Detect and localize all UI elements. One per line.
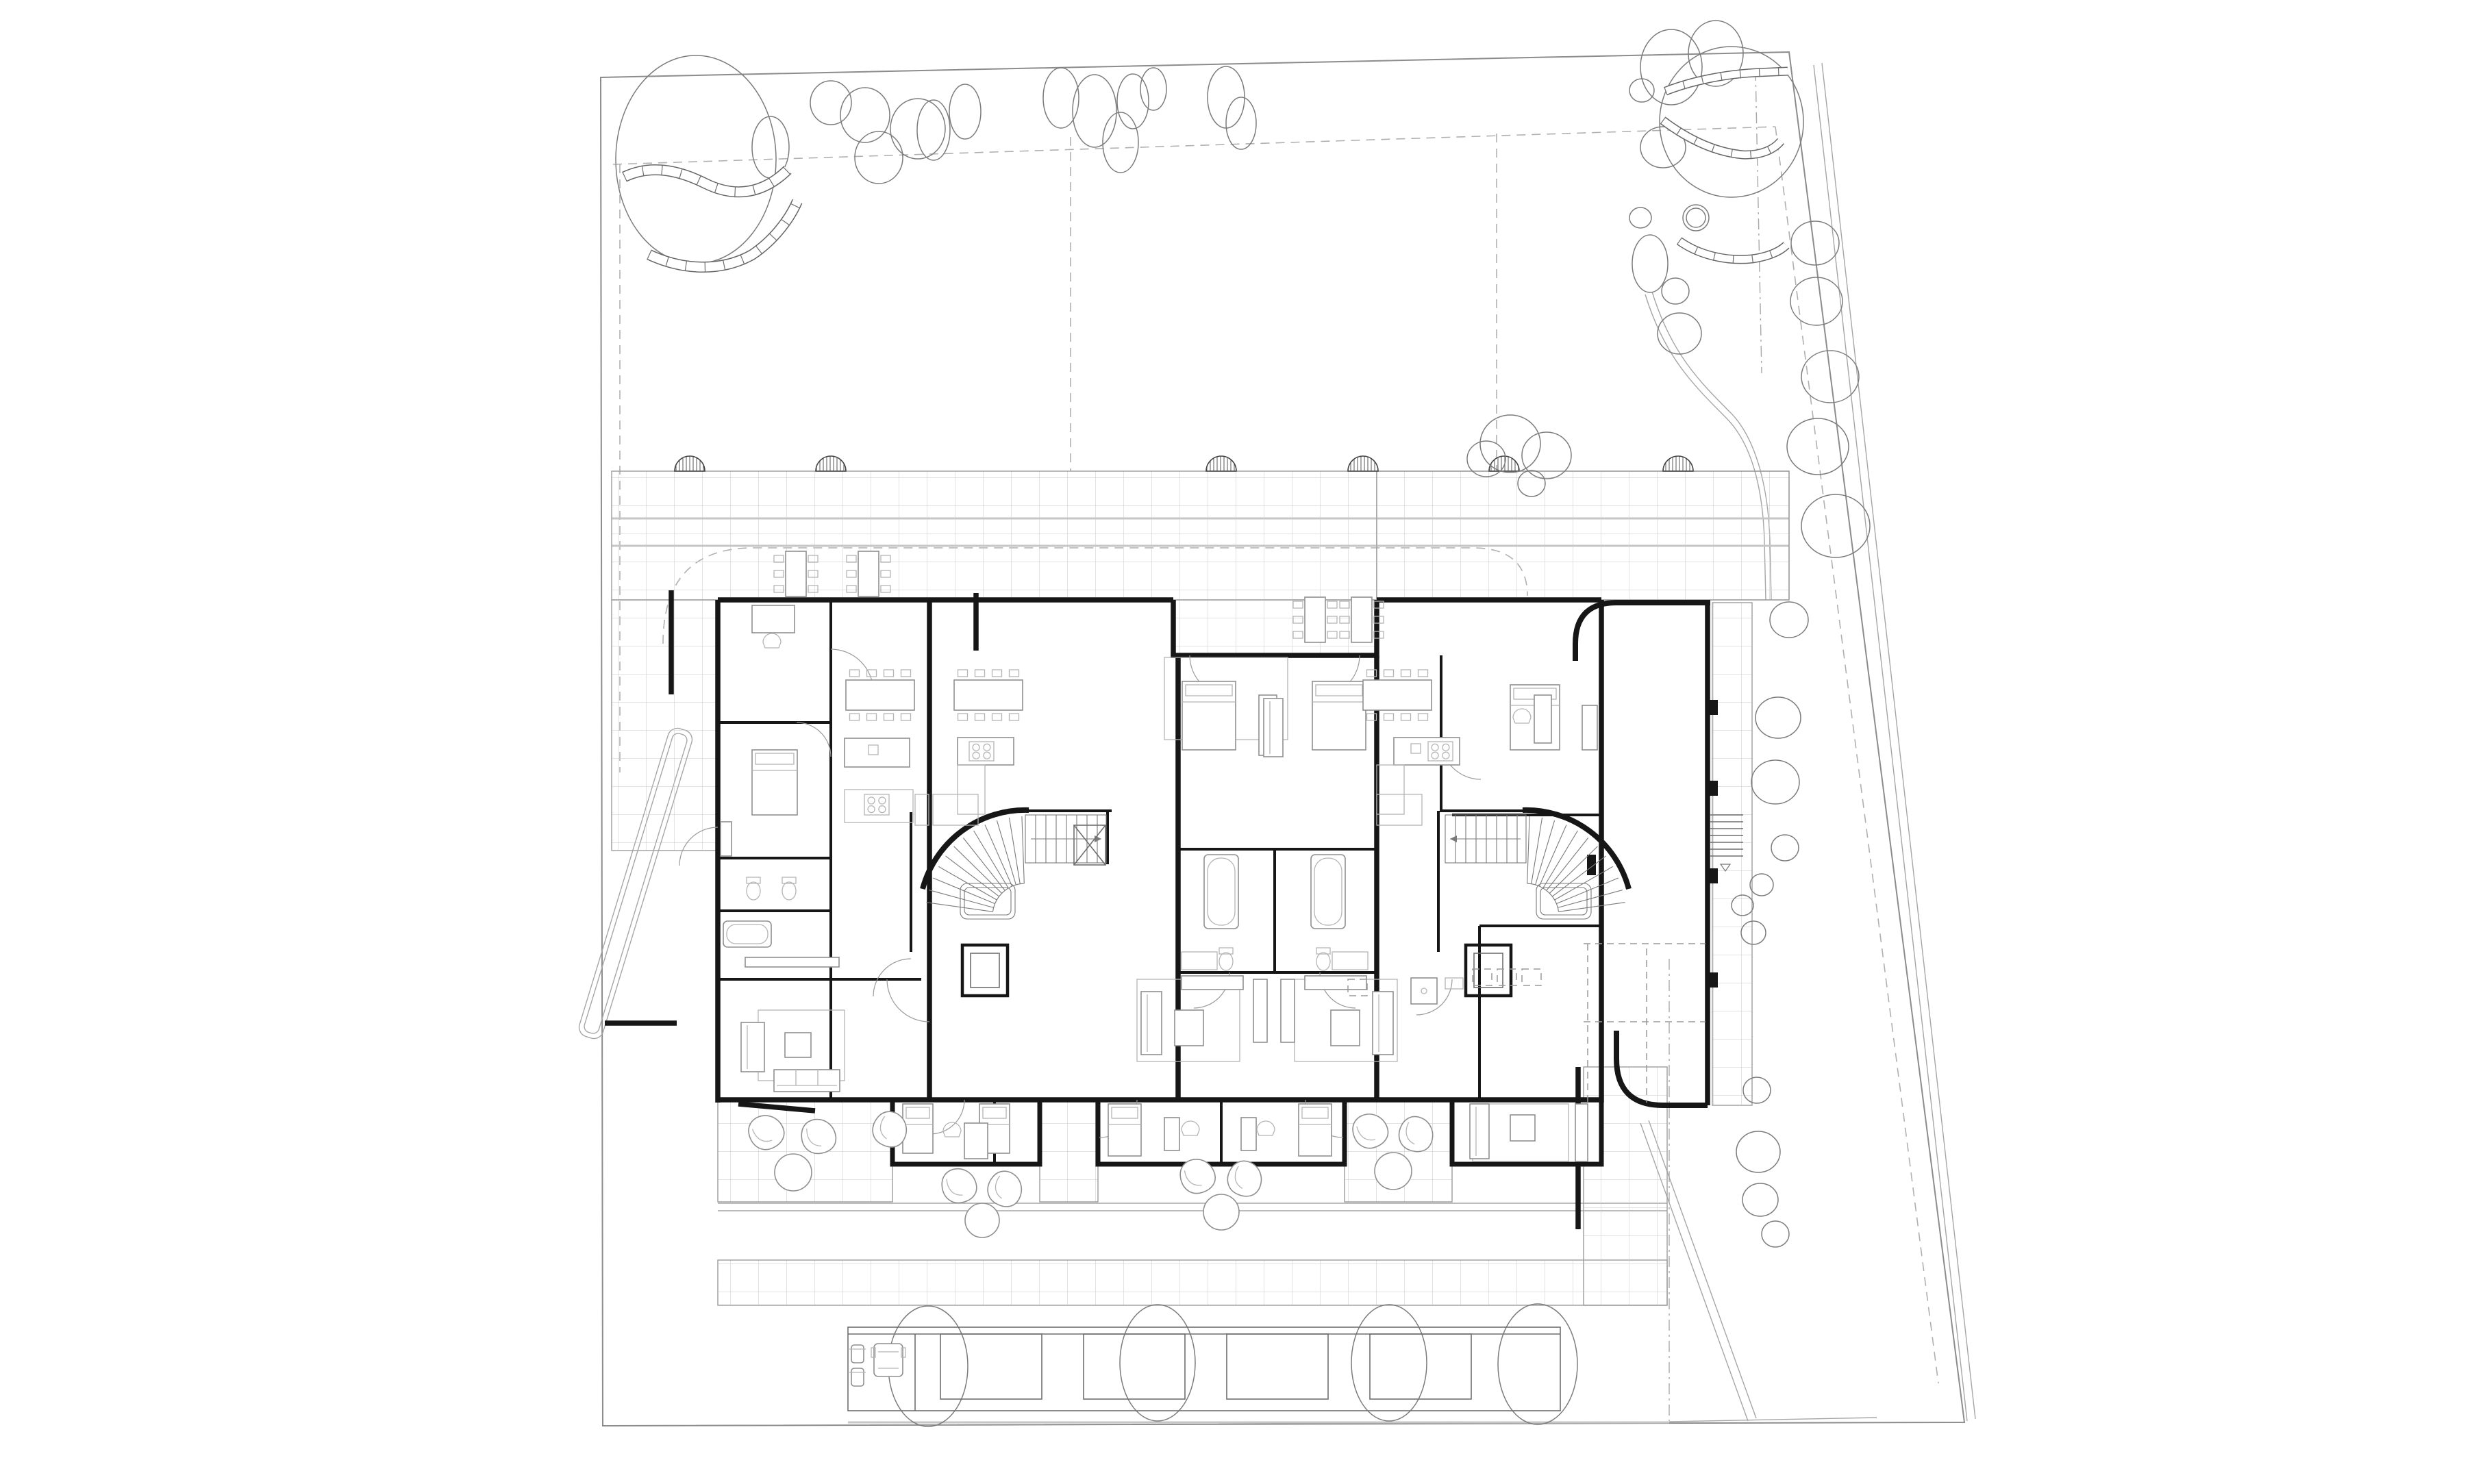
hedge-tick [1759, 68, 1760, 77]
tree-canopy [1226, 97, 1256, 149]
wardrobe [1305, 976, 1366, 990]
stove-burner [879, 806, 886, 813]
awning-dome [816, 456, 846, 471]
elevator-car [971, 953, 999, 988]
stair-tread [946, 856, 999, 896]
tree-canopy [810, 81, 851, 125]
outdoor-table [1203, 1194, 1239, 1230]
stair-tread [1552, 856, 1605, 896]
floor-plan-page [0, 0, 2474, 1484]
hedge-tick [1733, 255, 1734, 264]
wardrobe [721, 822, 732, 856]
tree-canopy [949, 84, 981, 139]
kitchen-island [845, 738, 910, 767]
bed [903, 1104, 933, 1153]
sofa [1373, 992, 1393, 1055]
tree-canopy [1629, 207, 1651, 228]
dining-chair [992, 714, 1002, 720]
bed [1108, 1104, 1141, 1156]
door-swing [797, 722, 831, 757]
stair-tread [1009, 818, 1020, 884]
site-line [1814, 65, 1967, 1421]
lounge-chair-shell [937, 1164, 981, 1207]
vanity [1445, 978, 1463, 989]
dining-table [786, 551, 806, 596]
door-swing [887, 979, 929, 1022]
carport-bay [1370, 1334, 1471, 1399]
bed [1312, 681, 1366, 750]
vanity [1182, 952, 1217, 970]
dining-chair [1010, 670, 1019, 677]
awning-dome [1489, 456, 1519, 471]
bed [1299, 1104, 1332, 1156]
curved-wall [1523, 810, 1629, 889]
door-swing [873, 959, 911, 996]
sideboard [1575, 1104, 1588, 1161]
parking-layer [848, 1327, 1560, 1411]
sofa [774, 1070, 840, 1092]
sideboard [1253, 979, 1267, 1042]
toilet-bowl [1316, 953, 1330, 970]
tree-canopy [1771, 835, 1799, 861]
stair-tread [954, 846, 1002, 894]
stair-tread [963, 838, 1005, 891]
tree-canopy [1073, 75, 1116, 147]
dining-table [846, 680, 914, 710]
dining-chair [1419, 714, 1428, 720]
tree-canopy [1742, 1183, 1778, 1216]
dining-table [1363, 680, 1432, 710]
awning-dome [1348, 456, 1378, 471]
desk [964, 1123, 988, 1159]
desk [1241, 1118, 1256, 1150]
sofa [741, 1022, 764, 1072]
outdoor-table [1375, 1153, 1412, 1190]
coffee-table [1331, 1010, 1360, 1046]
coffee-table [785, 1033, 811, 1057]
tree-canopy [1662, 278, 1689, 304]
outdoor-table [965, 1203, 999, 1237]
dining-table [1305, 597, 1325, 642]
hedge-tick [1778, 67, 1779, 76]
kitchen-counter [1377, 794, 1422, 825]
sideboard [1281, 979, 1295, 1042]
tree-canopy [1751, 760, 1799, 804]
awning-dome [1663, 456, 1693, 471]
stair-tread [1022, 816, 1024, 883]
coffee-table [1175, 1010, 1203, 1046]
dining-chair [1401, 670, 1411, 677]
dining-chair [975, 714, 985, 720]
tiled-terrace [1040, 1100, 1098, 1202]
dining-chair [958, 714, 968, 720]
stove-burner [879, 797, 886, 804]
awning-dome [1206, 456, 1236, 471]
appliance-dashed [1497, 969, 1516, 985]
stair-tread [1532, 818, 1542, 884]
wardrobe [1182, 976, 1243, 990]
tiled-terrace [612, 600, 718, 851]
tree-canopy [1762, 1221, 1789, 1247]
motorcycle [851, 1368, 864, 1386]
shower [1411, 978, 1437, 1004]
tree-canopy [1658, 313, 1701, 354]
stove-burner [868, 797, 875, 804]
site-line [1669, 1418, 1877, 1422]
tree-canopy [1351, 1305, 1427, 1421]
dining-chair [850, 670, 860, 677]
sofa [1470, 1104, 1489, 1159]
dining-chair [884, 670, 894, 677]
stair-tread [1559, 903, 1625, 912]
dining-chair [901, 670, 911, 677]
motorcycle [851, 1345, 864, 1363]
parked-car [874, 1344, 903, 1376]
kitchen-counter [915, 794, 929, 825]
dining-chair [1010, 714, 1019, 720]
stair-tread [1547, 838, 1588, 891]
desk [752, 605, 795, 633]
elevator-shaft [962, 945, 1008, 996]
tiled-terrace [1712, 603, 1752, 1105]
coffee-table [1510, 1115, 1535, 1141]
dining-chair [1384, 670, 1394, 677]
dining-chair [867, 714, 877, 720]
tree-canopy [1790, 277, 1842, 325]
appliance-dashed [1473, 969, 1492, 985]
toilet-bowl [1219, 953, 1233, 970]
vanity [1332, 952, 1368, 970]
wall-pilaster [1708, 868, 1718, 883]
bathtub [1204, 855, 1238, 929]
toilet-bowl [747, 882, 760, 900]
wardrobe [1582, 705, 1597, 750]
tree-canopy [1629, 79, 1654, 102]
dining-chair [1384, 714, 1394, 720]
lounge-chair [983, 1167, 1027, 1211]
tree-canopy [890, 99, 945, 159]
outdoor-table [775, 1154, 812, 1191]
site-line [1822, 63, 1975, 1419]
tree-canopy [855, 131, 903, 184]
wardrobe [745, 957, 839, 967]
kitchen-counter [958, 765, 985, 814]
carport-bay [1227, 1334, 1328, 1399]
curved-wall [1575, 603, 1710, 661]
dining-chair [958, 670, 968, 677]
awning-dome [675, 456, 705, 471]
site-line [1775, 127, 1938, 1383]
carport-bay [1084, 1334, 1185, 1399]
stove [864, 794, 889, 815]
tree-canopy [1736, 1131, 1780, 1172]
desk [1534, 695, 1551, 743]
dining-chair [1419, 670, 1428, 677]
bathtub [1311, 855, 1345, 929]
curved-wall [923, 810, 1029, 889]
stove-burner [868, 806, 875, 813]
dining-table [858, 551, 879, 596]
dining-chair [992, 670, 1002, 677]
wall-pilaster [1708, 972, 1718, 988]
wall-pilaster [1708, 781, 1718, 796]
tree-canopy [1120, 1305, 1195, 1421]
tree-canopy [1140, 68, 1166, 110]
appliance-dashed [1522, 969, 1541, 985]
tiled-terrace [718, 1260, 1667, 1305]
dining-chair [850, 714, 860, 720]
stair-tread [997, 820, 1016, 885]
bed [1182, 681, 1236, 750]
dining-table [1351, 597, 1372, 642]
wall-pilaster [1708, 700, 1718, 715]
tree-canopy [1755, 697, 1801, 738]
site-line [1755, 70, 1762, 373]
tiled-terrace [1377, 471, 1789, 600]
lounge-chair [937, 1164, 981, 1207]
dining-chair [901, 714, 911, 720]
tree-canopy [1498, 1304, 1577, 1424]
dining-chair [1401, 714, 1411, 720]
sofa [1264, 699, 1283, 757]
desk-chair [763, 633, 781, 648]
garden-well-inner [1686, 208, 1705, 227]
carport-frame [848, 1327, 1560, 1411]
bathtub [723, 921, 771, 947]
stair-arrowhead [1450, 835, 1457, 842]
desk [1164, 1118, 1179, 1150]
tree-canopy [1103, 112, 1138, 173]
tree-canopy [1801, 494, 1870, 557]
stair-tread [1527, 816, 1529, 883]
dining-chair [884, 714, 894, 720]
stair-tread [1536, 820, 1555, 885]
bed [752, 750, 797, 815]
sofa [1141, 992, 1162, 1055]
tree-canopy [1632, 235, 1668, 292]
stair-tread [926, 903, 992, 912]
toilet-bowl [782, 882, 796, 900]
kitchen-counter [1377, 765, 1404, 814]
lounge-chair-shell [983, 1167, 1027, 1211]
tree-canopy [1770, 602, 1808, 638]
kitchen-counter [933, 794, 978, 825]
dining-table [954, 680, 1023, 710]
carport-bay [940, 1334, 1042, 1399]
floor-plan-canvas [0, 0, 2474, 1484]
tree-canopy [1750, 874, 1773, 896]
dining-chair [975, 670, 985, 677]
stair-arrowhead [1095, 835, 1101, 842]
